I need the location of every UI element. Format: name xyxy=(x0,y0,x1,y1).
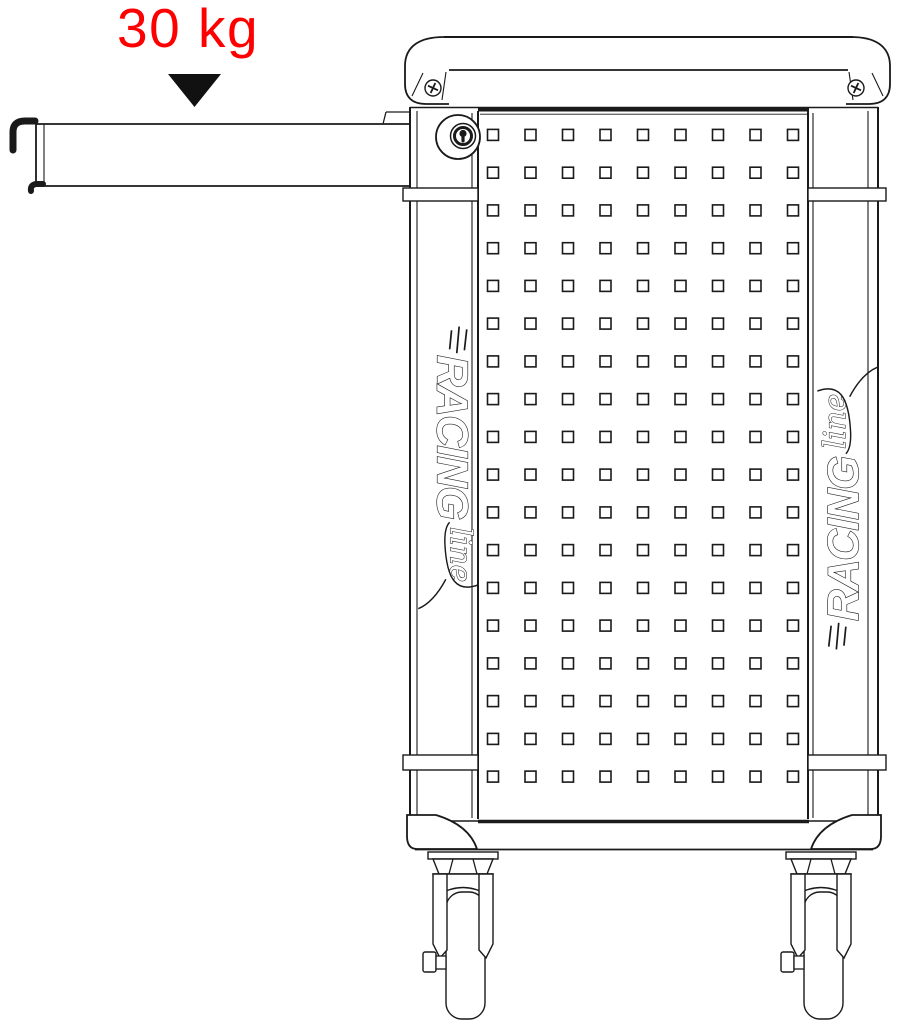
rail-end-foot xyxy=(31,184,43,191)
pegboard-hole xyxy=(638,167,649,178)
pegboard-hole xyxy=(713,167,724,178)
pegboard-hole xyxy=(713,545,724,556)
pegboard-hole xyxy=(750,129,761,140)
pegboard-hole xyxy=(675,733,686,744)
pegboard-hole xyxy=(638,620,649,631)
pegboard-hole xyxy=(750,318,761,329)
pegboard-hole xyxy=(788,733,799,744)
pegboard-hole xyxy=(525,733,536,744)
pegboard-hole xyxy=(638,280,649,291)
pegboard-hole xyxy=(488,545,499,556)
pegboard-hole xyxy=(788,507,799,518)
pegboard-hole xyxy=(750,280,761,291)
pegboard-hole xyxy=(638,469,649,480)
pegboard-hole xyxy=(600,545,611,556)
pegboard-hole xyxy=(600,356,611,367)
pegboard-hole xyxy=(563,733,574,744)
pegboard-hole xyxy=(675,129,686,140)
pegboard-hole xyxy=(525,318,536,329)
pegboard-hole xyxy=(488,582,499,593)
pegboard-hole xyxy=(788,205,799,216)
pegboard-hole xyxy=(675,696,686,707)
pegboard-hole xyxy=(713,394,724,405)
pegboard-hole xyxy=(600,507,611,518)
pegboard-panel xyxy=(478,110,809,822)
pegboard-hole xyxy=(713,205,724,216)
pegboard-hole xyxy=(488,620,499,631)
pegboard-hole xyxy=(750,620,761,631)
speed-lines-icon xyxy=(829,623,846,650)
pegboard-hole xyxy=(713,507,724,518)
pegboard-hole xyxy=(675,356,686,367)
pegboard-hole xyxy=(750,658,761,669)
pegboard-hole xyxy=(750,431,761,442)
pegboard-hole xyxy=(750,696,761,707)
pegboard-hole xyxy=(675,318,686,329)
pegboard-hole xyxy=(750,356,761,367)
pegboard-hole xyxy=(488,771,499,782)
pegboard-hole xyxy=(638,733,649,744)
pegboard-hole xyxy=(675,280,686,291)
handle xyxy=(405,37,890,104)
pegboard-hole xyxy=(525,696,536,707)
pegboard-hole xyxy=(600,280,611,291)
pegboard-hole xyxy=(788,620,799,631)
screw-icon xyxy=(848,80,864,96)
pegboard-hole xyxy=(638,318,649,329)
pegboard-hole xyxy=(713,733,724,744)
pegboard-hole xyxy=(563,545,574,556)
pegboard-hole xyxy=(713,582,724,593)
pegboard-hole xyxy=(600,771,611,782)
pegboard-hole xyxy=(525,431,536,442)
pegboard-hole xyxy=(488,696,499,707)
pegboard-hole xyxy=(788,129,799,140)
pegboard-hole xyxy=(713,658,724,669)
pegboard-hole xyxy=(488,658,499,669)
rail-seam xyxy=(403,188,478,201)
pegboard-hole xyxy=(788,318,799,329)
pegboard-hole xyxy=(713,129,724,140)
pegboard-hole xyxy=(675,582,686,593)
pegboard-hole xyxy=(600,620,611,631)
brand-word-racing: RACING xyxy=(427,355,476,519)
bottom-corner-cap-right xyxy=(811,815,881,849)
pegboard-hole xyxy=(488,394,499,405)
pegboard-hole xyxy=(488,205,499,216)
caster-left xyxy=(423,852,498,1019)
pegboard-hole xyxy=(788,280,799,291)
pegboard-hole xyxy=(788,356,799,367)
pegboard-hole xyxy=(600,469,611,480)
pegboard-hole xyxy=(563,243,574,254)
pegboard-hole xyxy=(638,696,649,707)
pegboard-hole xyxy=(750,394,761,405)
pegboard-hole xyxy=(563,658,574,669)
pegboard-hole xyxy=(638,205,649,216)
trolley-line-drawing: 30 kg xyxy=(0,0,900,1024)
pegboard-hole xyxy=(675,620,686,631)
pegboard-hole xyxy=(525,129,536,140)
pegboard-hole xyxy=(525,771,536,782)
pegboard-hole xyxy=(563,280,574,291)
pegboard-hole xyxy=(638,507,649,518)
pegboard-hole xyxy=(600,658,611,669)
rail-hook-icon xyxy=(13,121,35,150)
pegboard-hole xyxy=(600,696,611,707)
pegboard-hole xyxy=(563,771,574,782)
handle-cap-left xyxy=(405,37,449,104)
pegboard-hole xyxy=(525,243,536,254)
pegboard-hole xyxy=(563,167,574,178)
pegboard-hole xyxy=(750,167,761,178)
speed-lines-icon xyxy=(450,327,467,354)
pegboard-hole xyxy=(600,431,611,442)
pegboard-hole xyxy=(750,771,761,782)
pegboard-hole xyxy=(488,507,499,518)
pegboard-hole xyxy=(525,167,536,178)
pegboard-hole xyxy=(788,696,799,707)
extension-rail xyxy=(13,112,411,191)
rail-mount-step xyxy=(383,112,411,124)
pegboard-hole xyxy=(488,356,499,367)
rail-seam xyxy=(808,188,886,201)
load-capacity-label: 30 kg xyxy=(117,0,259,59)
pegboard-hole xyxy=(713,280,724,291)
pegboard-hole xyxy=(788,771,799,782)
load-annotation: 30 kg xyxy=(117,0,259,107)
pegboard-hole xyxy=(675,205,686,216)
screw-icon xyxy=(425,80,441,96)
pegboard-hole xyxy=(713,431,724,442)
pegboard-hole xyxy=(713,356,724,367)
pegboard-hole xyxy=(563,356,574,367)
lock-icon xyxy=(436,115,480,159)
down-arrow-icon xyxy=(168,74,221,107)
pegboard-hole xyxy=(525,545,536,556)
pegboard-hole xyxy=(638,771,649,782)
brand-word-line: line xyxy=(444,527,478,582)
pegboard-hole xyxy=(788,431,799,442)
pegboard-hole xyxy=(525,356,536,367)
brand-word-line: line xyxy=(818,394,852,449)
pegboard-hole xyxy=(600,167,611,178)
pegboard-hole xyxy=(600,733,611,744)
pegboard-hole xyxy=(563,620,574,631)
pegboard-hole xyxy=(788,394,799,405)
pegboard-hole xyxy=(563,205,574,216)
pegboard-hole xyxy=(638,658,649,669)
pegboard-hole xyxy=(525,658,536,669)
pegboard-hole xyxy=(788,658,799,669)
pegboard-hole xyxy=(675,545,686,556)
pegboard-hole xyxy=(675,167,686,178)
pegboard-hole xyxy=(638,545,649,556)
pegboard-hole xyxy=(713,696,724,707)
pegboard-hole xyxy=(563,469,574,480)
pegboard-hole xyxy=(750,469,761,480)
pegboard-hole xyxy=(488,431,499,442)
pegboard-hole xyxy=(600,582,611,593)
pegboard-hole xyxy=(675,394,686,405)
pegboard-hole xyxy=(525,620,536,631)
rail-bar xyxy=(36,124,411,186)
pegboard-hole xyxy=(713,243,724,254)
pegboard-hole xyxy=(525,469,536,480)
pegboard-hole xyxy=(563,507,574,518)
pegboard-hole xyxy=(675,243,686,254)
pegboard-hole xyxy=(788,243,799,254)
pegboard-hole xyxy=(675,658,686,669)
pegboard-hole xyxy=(713,771,724,782)
pegboard-hole xyxy=(750,507,761,518)
pegboard-hole xyxy=(638,431,649,442)
pegboard-hole xyxy=(788,167,799,178)
racing-line-logo-left: RACING line xyxy=(418,327,478,609)
pegboard-hole xyxy=(750,545,761,556)
bottom-corner-cap-left xyxy=(407,815,477,849)
pegboard-hole xyxy=(525,205,536,216)
pegboard-holes xyxy=(488,129,799,782)
pegboard-hole xyxy=(488,167,499,178)
pegboard-hole xyxy=(713,318,724,329)
pegboard-hole xyxy=(563,582,574,593)
pegboard-hole xyxy=(488,318,499,329)
brand-word-racing: RACING xyxy=(819,457,868,621)
pegboard-hole xyxy=(638,243,649,254)
pegboard-hole xyxy=(488,129,499,140)
pegboard-hole xyxy=(563,696,574,707)
pegboard-hole xyxy=(600,243,611,254)
pegboard-hole xyxy=(600,129,611,140)
pegboard-hole xyxy=(525,280,536,291)
rail-seam xyxy=(808,755,886,770)
pegboard-hole xyxy=(563,431,574,442)
pegboard-hole xyxy=(750,243,761,254)
pegboard-hole xyxy=(638,394,649,405)
pegboard-hole xyxy=(750,582,761,593)
pegboard-hole xyxy=(750,733,761,744)
pegboard-hole xyxy=(675,431,686,442)
pegboard-hole xyxy=(488,243,499,254)
pegboard-hole xyxy=(788,469,799,480)
pegboard-hole xyxy=(563,318,574,329)
pegboard-hole xyxy=(563,394,574,405)
pegboard-hole xyxy=(563,129,574,140)
pegboard-hole xyxy=(713,620,724,631)
pegboard-hole xyxy=(638,582,649,593)
tool-trolley-illustration: 30 kg xyxy=(0,0,900,1024)
pegboard-hole xyxy=(600,394,611,405)
pegboard-hole xyxy=(525,394,536,405)
rail-seam xyxy=(403,755,478,770)
pegboard-hole xyxy=(600,318,611,329)
caster-right xyxy=(781,852,856,1019)
pegboard-hole xyxy=(600,205,611,216)
pegboard-hole xyxy=(638,129,649,140)
pegboard-hole xyxy=(713,469,724,480)
pegboard-hole xyxy=(638,356,649,367)
pegboard-hole xyxy=(750,205,761,216)
pegboard-hole xyxy=(788,545,799,556)
pegboard-hole xyxy=(525,582,536,593)
pegboard-hole xyxy=(675,771,686,782)
pegboard-hole xyxy=(788,582,799,593)
pegboard-hole xyxy=(488,280,499,291)
pegboard-hole xyxy=(675,469,686,480)
pegboard-hole xyxy=(488,469,499,480)
pegboard-hole xyxy=(525,507,536,518)
handle-cap-right xyxy=(846,37,890,104)
pegboard-hole xyxy=(488,733,499,744)
pegboard-hole xyxy=(675,507,686,518)
